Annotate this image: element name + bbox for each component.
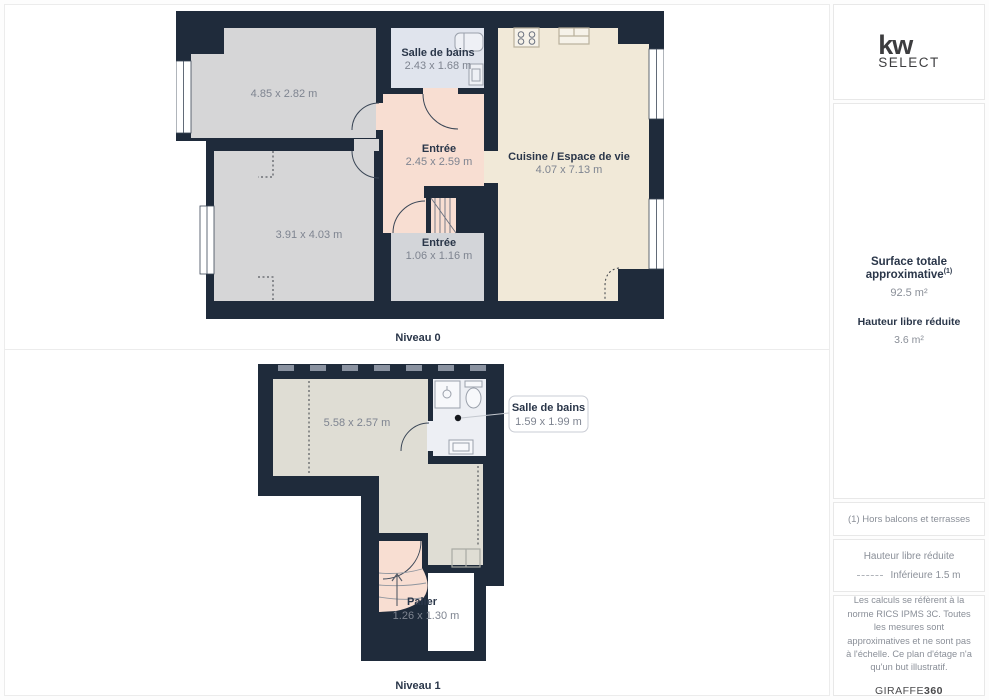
room-label-dims: 2.43 x 1.68 m <box>405 60 472 72</box>
surface-total-value: 92.5 m² <box>890 287 927 299</box>
info-sidebar: kw SELECT Surface totale approximative(1… <box>833 0 986 700</box>
levels-divider <box>5 349 829 350</box>
room-label-name: Palier <box>407 596 438 608</box>
legend-box: Hauteur libre réduite Inférieure 1.5 m <box>833 539 985 592</box>
room-n0-entree <box>383 94 484 186</box>
room-label-dims: 2.45 x 2.59 m <box>406 156 473 168</box>
room-label-dims: 4.07 x 7.13 m <box>536 164 603 176</box>
n1-bath-bottom-wall <box>428 456 486 464</box>
floorplan-niveau-1: Salle de bains 1.59 x 1.99 m 5.58 x 2.57… <box>256 363 596 663</box>
surface-total-label: Surface totale approximative(1) <box>834 256 984 281</box>
n0-opening-entree-cuisine <box>484 151 498 183</box>
room-label-dims: 1.26 x 1.30 m <box>393 610 460 622</box>
logo-select-text: SELECT <box>878 56 940 70</box>
dashed-line-icon <box>857 575 883 576</box>
hauteur-reduite-label: Hauteur libre réduite <box>858 316 961 328</box>
room-label-dims: 5.58 x 2.57 m <box>324 417 391 429</box>
n1-bath-door-gap <box>427 421 433 451</box>
legend-title: Hauteur libre réduite <box>864 551 955 562</box>
brand-regular: GIRAFFE <box>875 685 924 697</box>
kw-select-logo: kw SELECT <box>878 34 940 70</box>
brand-bold: 360 <box>924 685 943 697</box>
surface-info-box: Surface totale approximative(1) 92.5 m² … <box>833 103 985 499</box>
legend-row: Inférieure 1.5 m <box>857 570 960 581</box>
toilet-tank-icon <box>465 381 482 387</box>
room-n0-entree-lower <box>383 186 426 233</box>
giraffe360-brand: GIRAFFE360 <box>875 685 943 697</box>
level-1-label: Niveau 1 <box>5 680 831 692</box>
room-n0-bedroom2 <box>214 151 374 301</box>
room-label-name: Cuisine / Espace de vie <box>508 151 630 163</box>
stove-icon <box>514 28 539 47</box>
room-label-name: Entrée <box>422 237 456 249</box>
surface-footnote-marker: (1) <box>944 268 953 275</box>
footnote-text: (1) Hors balcons et terrasses <box>848 514 970 525</box>
room-label-dims: 1.59 x 1.99 m <box>515 416 582 428</box>
logo-kw-text: kw <box>878 34 940 56</box>
n0-notch-topleft <box>191 28 224 54</box>
disclaimer-box: Les calculs se réfèrent à la norme RICS … <box>833 595 985 696</box>
room-label-name: Salle de bains <box>401 47 474 59</box>
n0-notch-kitchen-tr <box>618 28 649 44</box>
footnote-box: (1) Hors balcons et terrasses <box>833 502 985 536</box>
disclaimer-text: Les calculs se réfèrent à la norme RICS … <box>844 594 974 675</box>
room-label-name: Salle de bains <box>512 402 585 414</box>
level-0-label: Niveau 0 <box>5 332 831 344</box>
hauteur-reduite-value: 3.6 m² <box>894 334 924 346</box>
room-label-name: Entrée <box>422 143 456 155</box>
floorplan-panel: 4.85 x 2.82 m Salle de bains 2.43 x 1.68… <box>4 4 830 696</box>
shower-icon <box>435 381 460 408</box>
logo-box: kw SELECT <box>833 4 985 100</box>
surface-total-text: Surface totale approximative <box>866 256 947 281</box>
n0-notch-kitchen-br <box>618 269 649 301</box>
floorplan-niveau-0: 4.85 x 2.82 m Salle de bains 2.43 x 1.68… <box>176 11 664 319</box>
room-label-dims: 3.91 x 4.03 m <box>276 229 343 241</box>
n1-callout-dot <box>455 415 461 421</box>
room-label-dims: 4.85 x 2.82 m <box>251 88 318 100</box>
legend-value: Inférieure 1.5 m <box>890 570 960 581</box>
toilet-icon <box>466 388 481 408</box>
n0-wall-mid <box>424 186 484 198</box>
n0-wall-stairs-right <box>456 198 484 233</box>
room-label-dims: 1.06 x 1.16 m <box>406 250 473 262</box>
